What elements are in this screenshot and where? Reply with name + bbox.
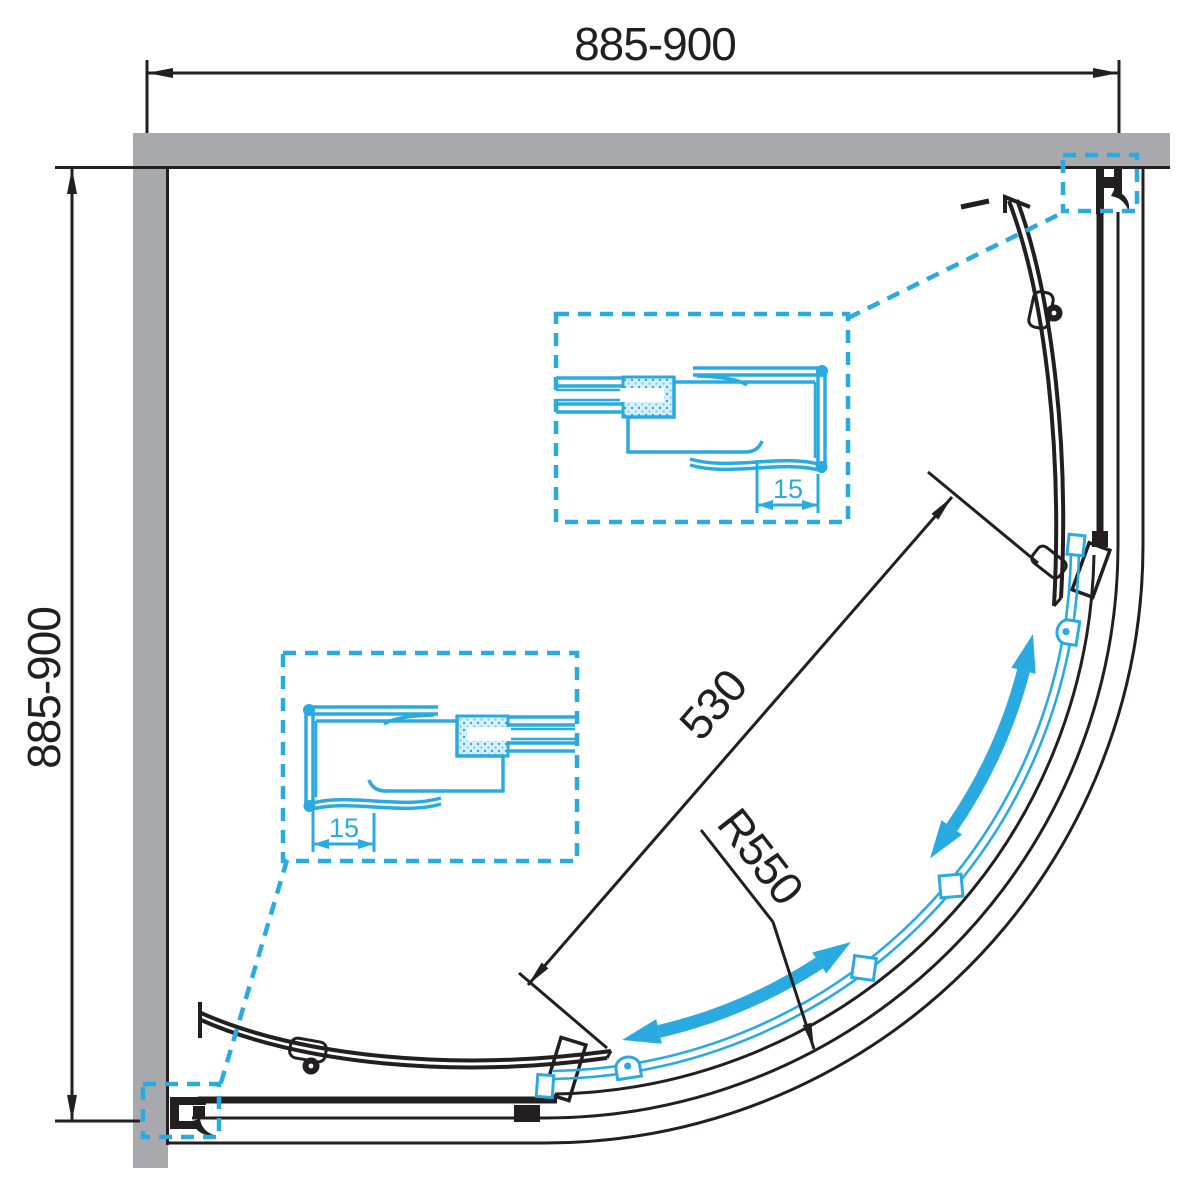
inner-rail-arc	[555, 555, 1094, 1094]
side-depth-dimension: 885-900	[18, 168, 140, 1121]
cyan-door-end-cap-top	[1067, 534, 1085, 556]
top-wall	[133, 133, 1170, 168]
detail-callouts	[143, 155, 1137, 1137]
cyan-door-end-cap-bottom	[536, 1074, 553, 1097]
shower-enclosure-technical-drawing: 885-900 885-900 530 R550	[0, 0, 1200, 1198]
wall-profile-top-right	[1096, 168, 1129, 214]
walls	[55, 133, 1170, 1168]
upper-detail-gap-label: 15	[773, 474, 803, 504]
detail-leader-line-lower	[220, 860, 287, 1086]
radius-label: R550	[707, 798, 813, 914]
left-wall	[133, 133, 168, 1168]
door-opening-dimension: 530	[519, 472, 1038, 1048]
slide-direction-arrow-lower	[622, 942, 851, 1044]
arrowhead-icon	[1011, 634, 1035, 674]
top-width-label: 885-900	[574, 18, 736, 70]
cyan-door-guide-lower	[852, 956, 877, 981]
sliding-door-black-top	[961, 197, 1110, 606]
cyan-door-roller-shield-top	[1055, 618, 1079, 645]
cyan-door-roller-shield-bottom	[614, 1055, 641, 1079]
sliding-door-cyan	[536, 534, 1085, 1097]
door-top-stub	[961, 201, 989, 207]
arrowhead-icon	[622, 1019, 662, 1044]
cyan-door-guide-upper	[939, 874, 963, 898]
panel-end-connector-bottom	[514, 1105, 540, 1122]
detail-inset-upper-box	[556, 314, 848, 522]
middle-rail-line	[192, 212, 1118, 1118]
detail-inset-lower-box	[283, 653, 577, 861]
slide-direction-arrow-upper	[930, 634, 1036, 859]
profile-section-detail-lower: 15	[303, 704, 575, 852]
lower-detail-gap-label: 15	[329, 813, 359, 843]
top-width-dimension: 885-900	[147, 18, 1119, 133]
profile-section-detail-upper: 15	[556, 365, 828, 513]
fixed-panels	[198, 205, 1108, 1122]
side-depth-label: 885-900	[18, 607, 70, 769]
